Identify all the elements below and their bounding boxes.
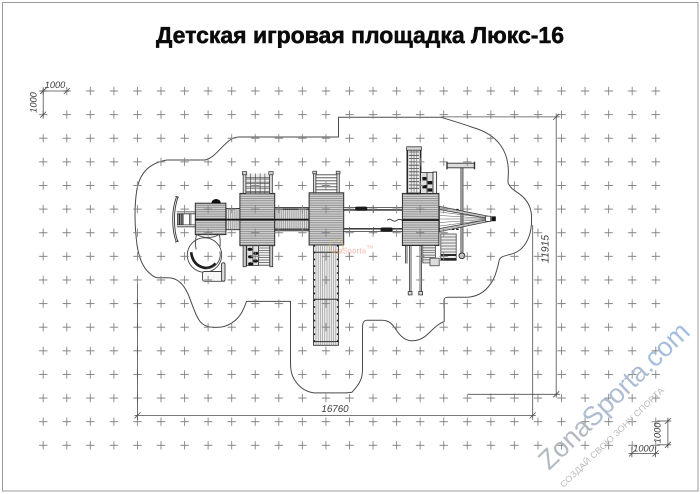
svg-text:naSporta: naSporta bbox=[334, 246, 366, 256]
svg-text:16760: 16760 bbox=[321, 404, 349, 415]
svg-text:1000: 1000 bbox=[45, 80, 67, 90]
svg-text:1000: 1000 bbox=[29, 91, 39, 113]
svg-text:1000: 1000 bbox=[653, 422, 663, 444]
svg-text:Детская игровая площадка Люкс-: Детская игровая площадка Люкс-16 bbox=[156, 22, 564, 48]
svg-text:1000: 1000 bbox=[633, 444, 655, 454]
svg-text:11915: 11915 bbox=[541, 235, 552, 263]
svg-text:TM: TM bbox=[367, 245, 374, 250]
